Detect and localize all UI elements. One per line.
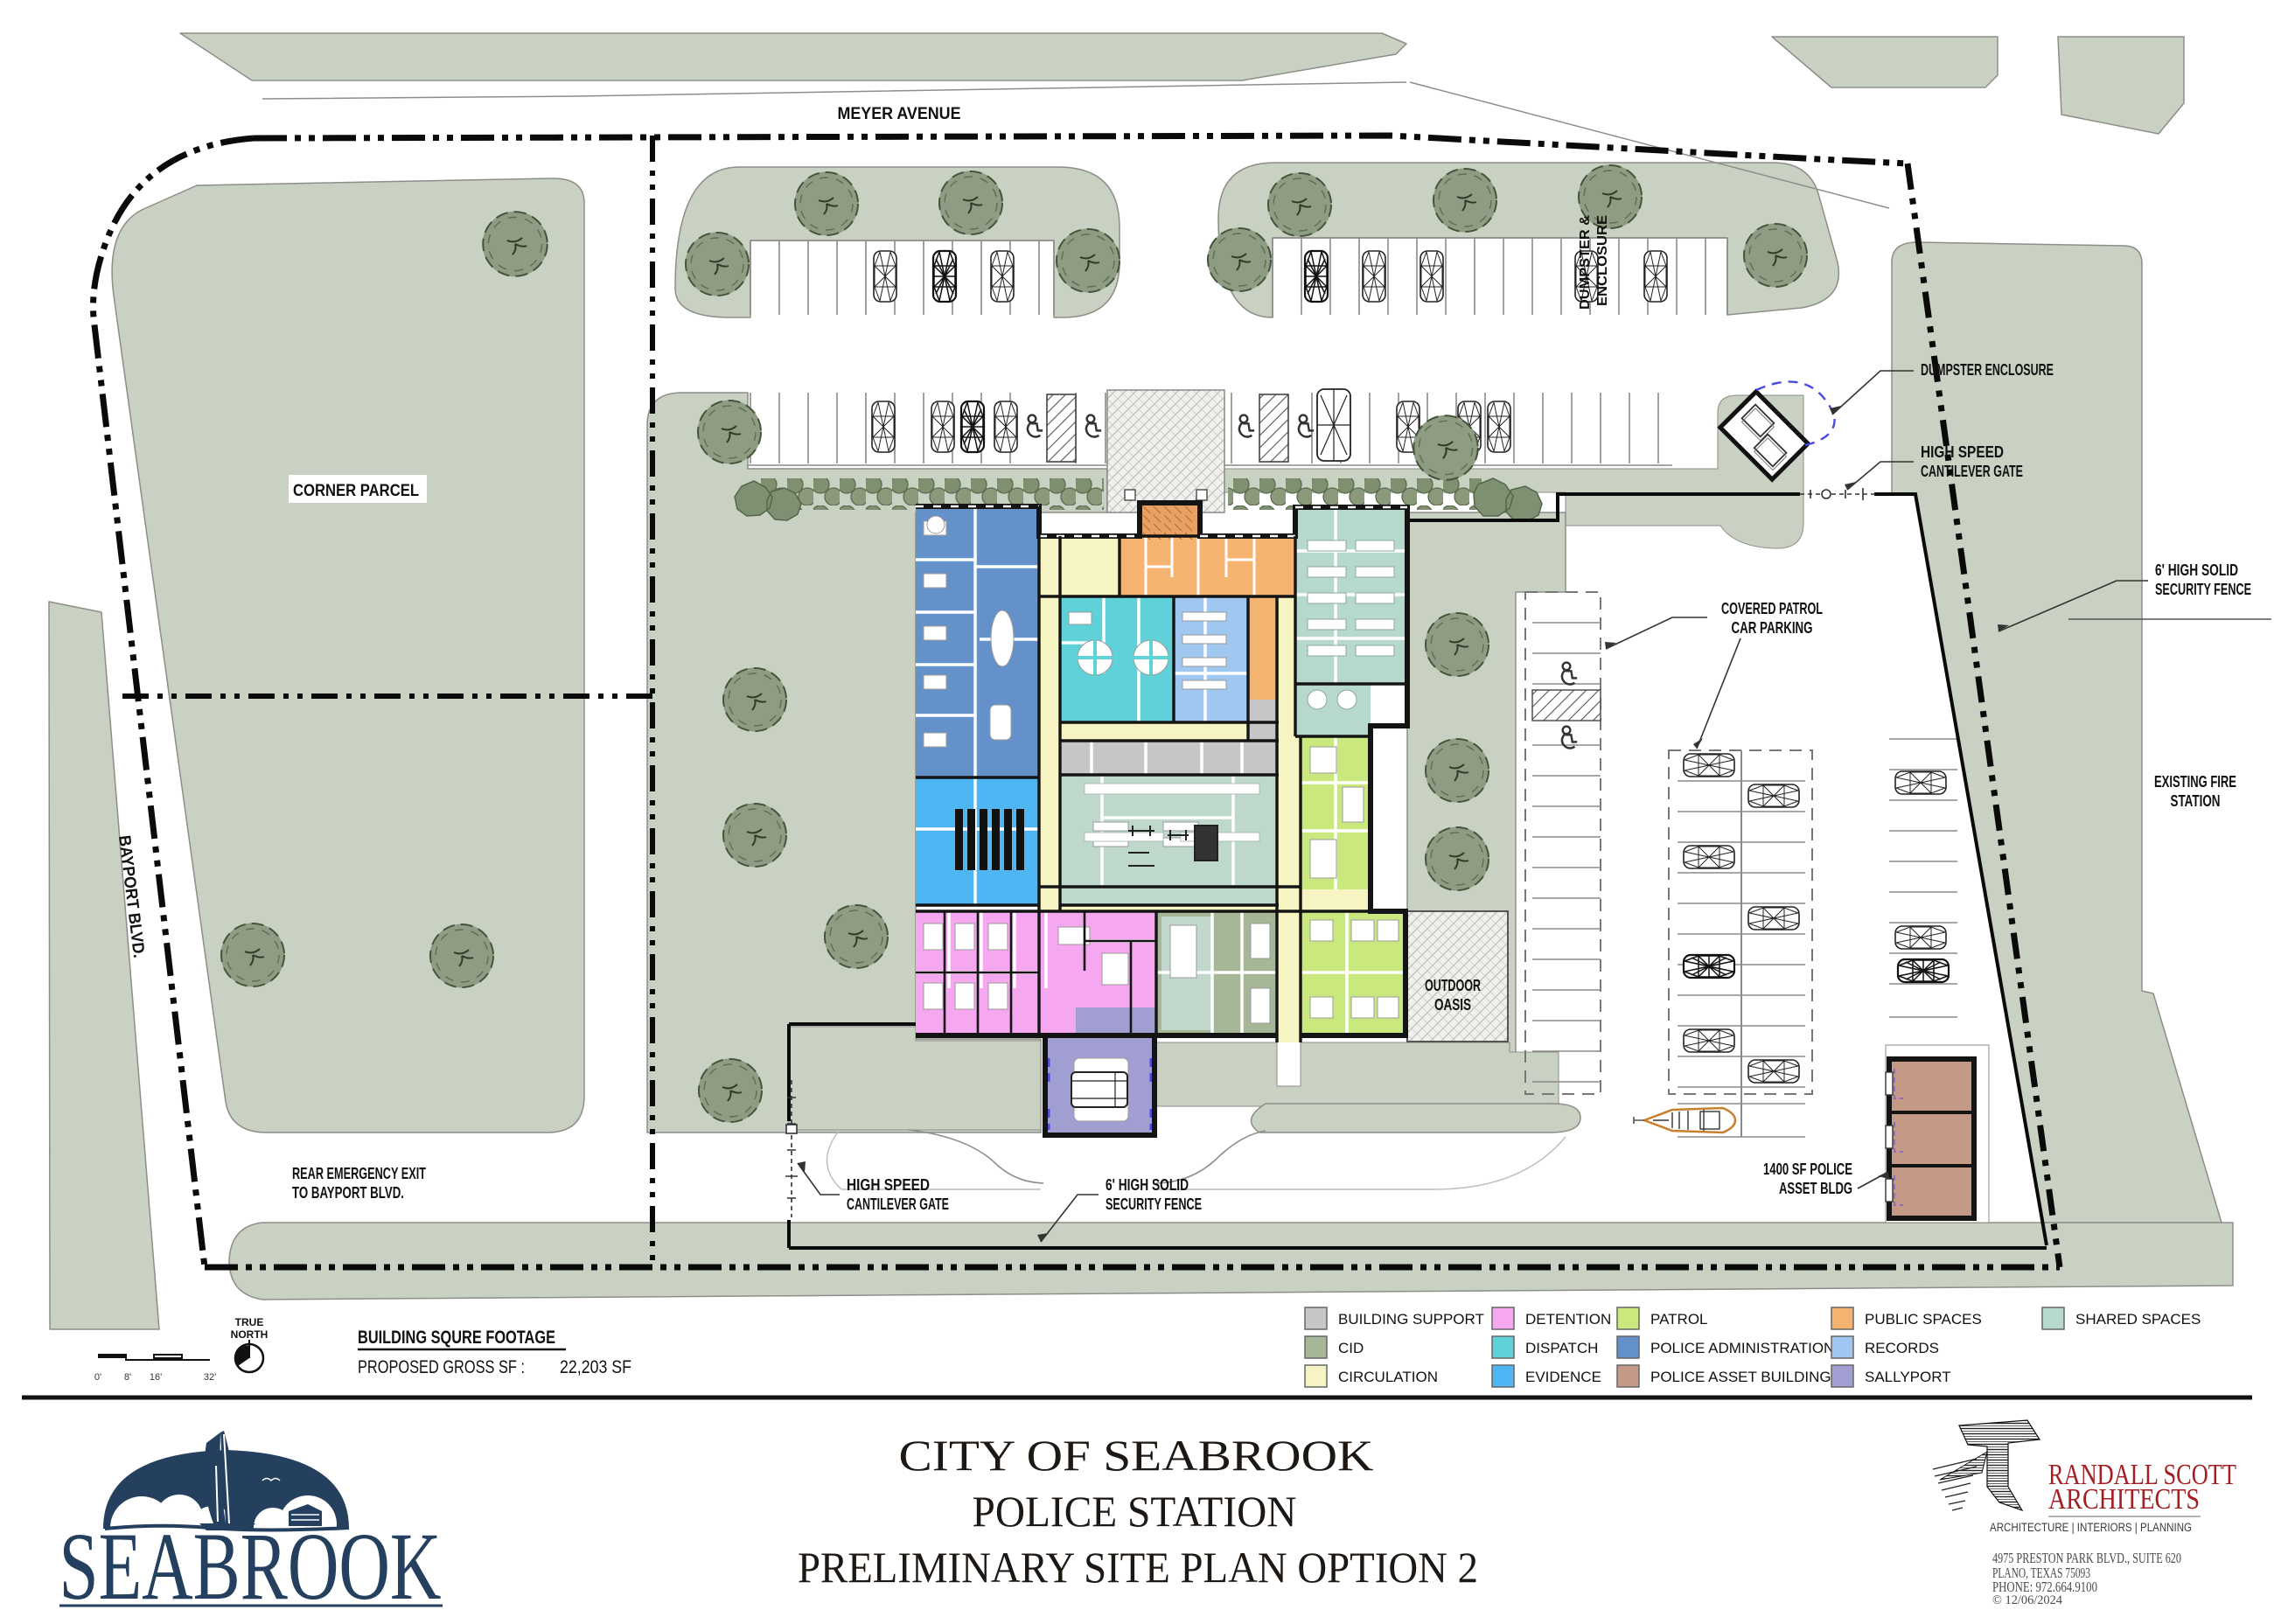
- svg-text:OUTDOOR: OUTDOOR: [1425, 977, 1481, 994]
- svg-text:CANTILEVER GATE: CANTILEVER GATE: [847, 1195, 949, 1213]
- svg-text:PROPOSED GROSS SF :: PROPOSED GROSS SF :: [358, 1357, 525, 1377]
- svg-text:HIGH SPEED: HIGH SPEED: [1921, 443, 2004, 461]
- svg-text:SHARED SPACES: SHARED SPACES: [2075, 1311, 2201, 1328]
- svg-text:STATION: STATION: [2171, 792, 2221, 810]
- svg-text:TRUE: TRUE: [235, 1316, 264, 1328]
- svg-text:1400 SF POLICE: 1400 SF POLICE: [1763, 1160, 1852, 1178]
- svg-text:REAR EMERGENCY EXIT: REAR EMERGENCY EXIT: [292, 1165, 426, 1182]
- svg-text:NORTH: NORTH: [231, 1328, 269, 1341]
- svg-text:SECURITY FENCE: SECURITY FENCE: [1106, 1195, 1202, 1213]
- svg-text:SALLYPORT: SALLYPORT: [1865, 1369, 1951, 1385]
- svg-text:COVERED PATROL: COVERED PATROL: [1721, 600, 1823, 617]
- svg-text:EXISTING FIRE: EXISTING FIRE: [2154, 773, 2236, 791]
- svg-text:SECURITY FENCE: SECURITY FENCE: [2155, 581, 2251, 598]
- svg-text:0': 0': [94, 1372, 101, 1383]
- svg-text:TO BAYPORT BLVD.: TO BAYPORT BLVD.: [292, 1184, 404, 1202]
- svg-text:PUBLIC SPACES: PUBLIC SPACES: [1865, 1311, 1982, 1328]
- svg-text:DETENTION: DETENTION: [1525, 1311, 1611, 1328]
- svg-text:PRELIMINARY SITE PLAN OPTION 2: PRELIMINARY SITE PLAN OPTION 2: [798, 1543, 1478, 1592]
- svg-text:MEYER AVENUE: MEYER AVENUE: [838, 105, 961, 123]
- svg-text:ARCHITECTS: ARCHITECTS: [2048, 1483, 2200, 1516]
- svg-text:EVIDENCE: EVIDENCE: [1525, 1369, 1601, 1385]
- svg-text:32': 32': [204, 1372, 216, 1383]
- svg-text:POLICE ADMINISTRATION: POLICE ADMINISTRATION: [1650, 1340, 1834, 1356]
- svg-text:ENCLOSURE: ENCLOSURE: [1595, 215, 1610, 306]
- svg-text:16': 16': [150, 1372, 162, 1383]
- svg-text:SEABROOK: SEABROOK: [59, 1513, 442, 1620]
- svg-text:8': 8': [124, 1372, 131, 1383]
- svg-text:POLICE STATION: POLICE STATION: [973, 1487, 1297, 1536]
- svg-text:CITY OF SEABROOK: CITY OF SEABROOK: [899, 1431, 1374, 1480]
- svg-text:BUILDING SUPPORT: BUILDING SUPPORT: [1338, 1311, 1484, 1328]
- svg-text:HIGH SPEED: HIGH SPEED: [847, 1176, 930, 1194]
- svg-text:OASIS: OASIS: [1434, 996, 1471, 1014]
- svg-text:BUILDING SQURE FOOTAGE: BUILDING SQURE FOOTAGE: [358, 1328, 555, 1348]
- svg-text:CIRCULATION: CIRCULATION: [1338, 1369, 1438, 1385]
- svg-text:CANTILEVER GATE: CANTILEVER GATE: [1921, 463, 2023, 480]
- svg-text:PATROL: PATROL: [1650, 1311, 1708, 1328]
- svg-text:6' HIGH SOLID: 6' HIGH SOLID: [2155, 561, 2238, 579]
- svg-text:CORNER PARCEL: CORNER PARCEL: [293, 482, 419, 500]
- svg-text:ARCHITECTURE | INTERIORS | PLA: ARCHITECTURE | INTERIORS | PLANNING: [1990, 1521, 2192, 1534]
- svg-text:CID: CID: [1338, 1340, 1364, 1356]
- svg-text:CAR PARKING: CAR PARKING: [1732, 619, 1813, 637]
- svg-text:DISPATCH: DISPATCH: [1525, 1340, 1598, 1356]
- svg-text:DUMPSTER ENCLOSURE: DUMPSTER ENCLOSURE: [1921, 361, 2054, 379]
- svg-text:RECORDS: RECORDS: [1865, 1340, 1939, 1356]
- svg-text:ASSET BLDG: ASSET BLDG: [1779, 1180, 1852, 1197]
- svg-text:6' HIGH SOLID: 6' HIGH SOLID: [1106, 1176, 1189, 1194]
- svg-text:22,203 SF: 22,203 SF: [560, 1357, 631, 1377]
- svg-text:© 12/06/2024: © 12/06/2024: [1992, 1593, 2062, 1607]
- svg-text:DUMPSTER &: DUMPSTER &: [1578, 215, 1593, 310]
- svg-text:POLICE ASSET BUILDING: POLICE ASSET BUILDING: [1650, 1369, 1831, 1385]
